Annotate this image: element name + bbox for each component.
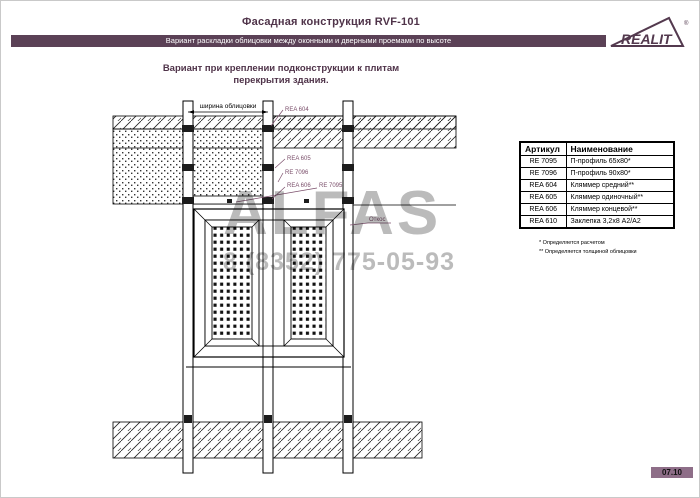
parts-table: Артикул Наименование RE 7095П-профиль 65… (519, 141, 675, 257)
facade-drawing: ширина облицовки REA 604 REA 605 RE 7096… (91, 93, 471, 485)
label-re7096: RE 7096 (285, 170, 309, 176)
dimension-cladding-width: ширина облицовки (188, 102, 268, 114)
footnote-2: ** Определяется толщиной облицовки (539, 248, 675, 257)
window (186, 209, 351, 367)
window-pane-right (284, 220, 333, 346)
page-code-badge: 07.10 (651, 467, 693, 478)
table-row: RE 7096П-профиль 90x80* (520, 168, 674, 180)
col-name: Наименование (566, 142, 674, 156)
table-row: REA 610Заклепка 3,2x8 А2/А2 (520, 216, 674, 228)
table-footnotes: * Определяется расчетом ** Определяется … (539, 239, 675, 257)
caption-line-2: перекрытия здания. (81, 75, 481, 87)
subtitle-bar: Вариант раскладки облицовки между оконны… (11, 35, 606, 47)
table-row: REA 606Кляммер концевой** (520, 204, 674, 216)
label-rea606: REA 606 (287, 183, 311, 189)
page-title: Фасадная конструкция RVF-101 (1, 16, 661, 28)
label-otkos: Откос (369, 217, 385, 223)
table-row: RE 7095П-профиль 65x80* (520, 156, 674, 168)
realit-logo: REALIT ® (607, 13, 693, 53)
catalog-page: Фасадная конструкция RVF-101 Вариант рас… (0, 0, 700, 498)
table-row: REA 604Кляммер средний** (520, 180, 674, 192)
footnote-1: * Определяется расчетом (539, 239, 675, 248)
dimension-label: ширина облицовки (200, 102, 257, 110)
label-rea604: REA 604 (285, 107, 309, 113)
logo-text: REALIT (621, 31, 673, 47)
table-row: REA 605Кляммер одиночный** (520, 192, 674, 204)
label-re7095: RE 7095 (319, 183, 343, 189)
caption-line-1: Вариант при креплении подконструкции к п… (81, 63, 481, 75)
window-pane-left (205, 220, 259, 346)
table-header-row: Артикул Наименование (520, 142, 674, 156)
drawing-caption: Вариант при креплении подконструкции к п… (81, 63, 481, 86)
col-article: Артикул (520, 142, 566, 156)
label-rea605: REA 605 (287, 156, 311, 162)
logo-registered-mark: ® (684, 20, 689, 27)
